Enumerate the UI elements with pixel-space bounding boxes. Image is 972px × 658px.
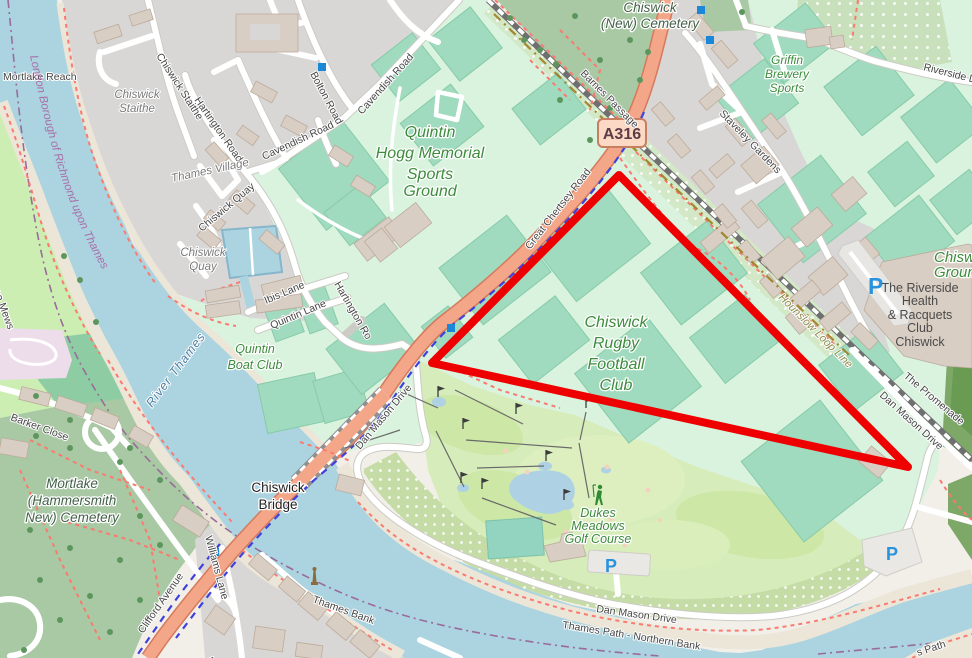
svg-text:(New) Cemetery: (New) Cemetery	[601, 16, 701, 31]
svg-text:Meadows: Meadows	[571, 519, 625, 533]
svg-text:Boat Club: Boat Club	[228, 358, 283, 372]
svg-text:Chiswick: Chiswick	[114, 89, 161, 101]
svg-text:A316: A316	[603, 126, 641, 143]
svg-text:Golf Course: Golf Course	[565, 532, 632, 546]
svg-text:Dukes: Dukes	[580, 506, 615, 520]
svg-text:Football: Football	[588, 356, 645, 373]
svg-text:Chiswick: Chiswick	[895, 335, 945, 349]
svg-text:& Racquets: & Racquets	[888, 308, 953, 322]
svg-text:Hogg Memorial: Hogg Memorial	[376, 145, 485, 162]
svg-text:Chiswick: Chiswick	[180, 247, 227, 259]
svg-text:Health: Health	[902, 294, 938, 308]
svg-text:Quintin: Quintin	[405, 124, 456, 141]
svg-text:Ground: Ground	[934, 264, 972, 281]
svg-text:Quay: Quay	[189, 261, 218, 273]
svg-text:Staithe: Staithe	[119, 103, 155, 115]
svg-text:Sports: Sports	[770, 81, 805, 95]
svg-text:Chiswick: Chiswick	[251, 480, 305, 495]
svg-text:Rugby: Rugby	[593, 335, 640, 352]
svg-text:Bridge: Bridge	[258, 497, 297, 512]
svg-text:Club: Club	[907, 321, 933, 335]
svg-text:Ground: Ground	[403, 183, 457, 200]
svg-text:Griffin: Griffin	[771, 53, 803, 67]
svg-text:New) Cemetery: New) Cemetery	[25, 510, 120, 525]
svg-text:The Riverside: The Riverside	[881, 281, 958, 295]
svg-text:Sports: Sports	[407, 166, 453, 183]
svg-text:Chiswick: Chiswick	[623, 0, 678, 15]
svg-text:P: P	[605, 556, 617, 576]
svg-text:(Hammersmith: (Hammersmith	[28, 493, 117, 508]
svg-text:Chiswick: Chiswick	[584, 314, 648, 331]
svg-text:P: P	[886, 544, 898, 564]
svg-text:Quintin: Quintin	[235, 342, 275, 356]
svg-text:Brewery: Brewery	[765, 67, 810, 81]
svg-text:Mortlake: Mortlake	[46, 476, 98, 491]
svg-text:Club: Club	[600, 377, 633, 394]
